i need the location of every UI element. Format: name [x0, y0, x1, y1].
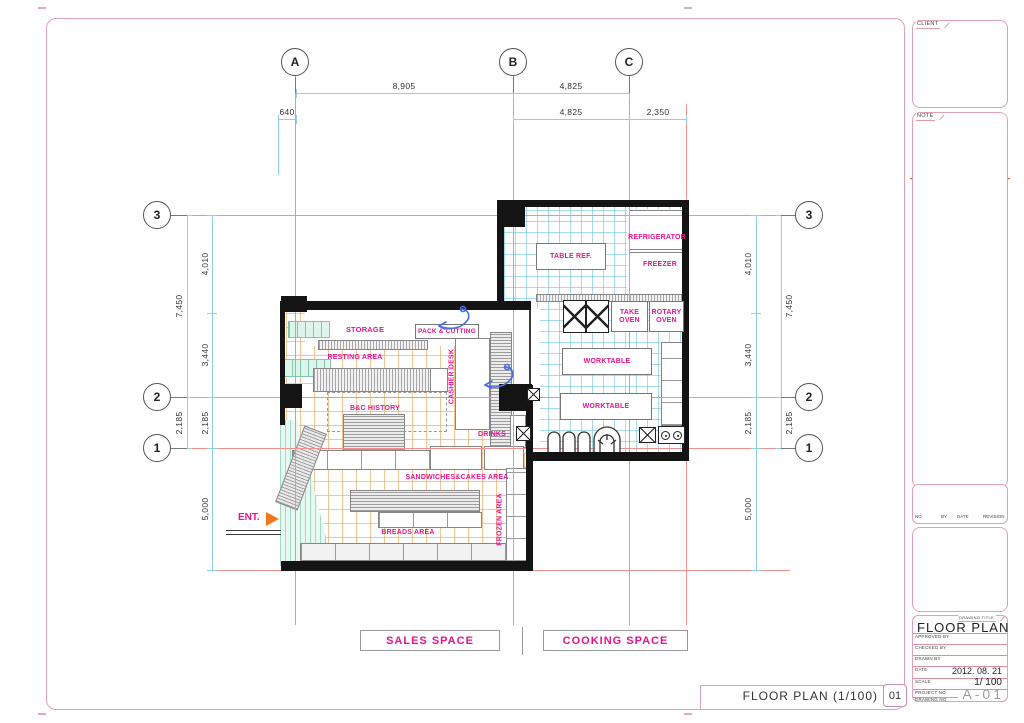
cashier-counter: [455, 338, 490, 430]
oven-unit: [563, 300, 586, 333]
column-label: B: [509, 55, 518, 69]
wall-cooking-top: [497, 200, 689, 207]
row-label: 1: [806, 441, 813, 455]
revision-header-revision: REVISION: [983, 514, 1005, 519]
dim-8905: 8,905: [364, 81, 444, 91]
date-value: 2012. 08. 21: [934, 666, 1002, 676]
drawing-no-value: A-01: [950, 686, 1004, 702]
rotary-oven-fixture: ROTARY OVEN: [649, 301, 684, 332]
display-counter: [313, 368, 448, 392]
pack-cutting-box: PACK & CUTTING: [415, 324, 479, 339]
registration-mark: [38, 7, 46, 9]
worktable-1-fixture: WORKTABLE: [562, 348, 652, 375]
gridline-2: [172, 397, 796, 398]
wall-sales-bottom: [281, 561, 532, 571]
row-label: 2: [154, 390, 161, 404]
column-label: C: [625, 55, 634, 69]
side-cabinet: [661, 342, 684, 426]
dim-4825: 4,825: [531, 81, 611, 91]
dim-7450-left: 7,450: [174, 286, 184, 326]
pack-cutting-label: PACK & CUTTING: [418, 328, 476, 335]
project-no-label: PROJECT NO: [915, 690, 946, 695]
table-ref-fixture: TABLE REF.: [536, 243, 606, 270]
drawing-sheet: A B C 3 2 1 3 2 1 8,905 4,825 640 4,825 …: [0, 0, 1024, 723]
counter-cap: [430, 368, 448, 392]
cashier-desk-label: CASHIER DESK: [449, 337, 456, 417]
sandwiches-label: SANDWICHES&CAKES AREA: [397, 474, 517, 481]
column-label: A: [291, 55, 300, 69]
wall-divider-upper: [529, 310, 531, 385]
dim-2185-right-inner: 2,185: [743, 403, 753, 443]
row-bubble-1-left: 1: [143, 434, 171, 462]
floor-drain: [516, 426, 531, 441]
bottom-shelf-row: [300, 543, 526, 561]
dimension-tick: [207, 570, 217, 571]
storage-shelf: [318, 340, 428, 350]
breads-island: [350, 490, 480, 512]
drawing-no-label: DRAWING NO: [915, 697, 947, 702]
take-oven-label: TAKE OVEN: [612, 309, 647, 325]
dimension-tick: [751, 397, 761, 398]
bubble-stem: [171, 397, 187, 398]
take-oven-fixture: TAKE OVEN: [611, 301, 648, 332]
checked-by-label: CHECKED BY: [915, 645, 946, 650]
column-bubble-B: B: [499, 48, 527, 76]
note-box: [912, 112, 1008, 488]
wall-sales-top: [281, 301, 531, 310]
row-bubble-3-right: 3: [795, 201, 823, 229]
refrigerator-unit: [629, 210, 683, 250]
dimension-line: [781, 215, 782, 448]
burner-icon: [661, 431, 670, 440]
neighbor-wall-line: [226, 534, 281, 535]
dimension-line: [187, 215, 188, 448]
column-block-left-2: [280, 384, 302, 408]
bubble-stem: [171, 448, 187, 449]
dimension-tick: [513, 115, 514, 124]
dim-640: 640: [267, 107, 307, 117]
dimension-tick: [751, 313, 761, 314]
gridline-B: [513, 76, 514, 625]
dimension-line: [513, 119, 687, 120]
row-bubble-2-left: 2: [143, 383, 171, 411]
dim-2350: 2,350: [628, 107, 688, 117]
gridline-3: [172, 215, 796, 216]
storage-label: STORAGE: [330, 325, 400, 334]
worktable-2-label: WORKTABLE: [583, 403, 630, 410]
gridline-A: [295, 76, 296, 625]
floor-drain: [527, 388, 540, 401]
breads-island-lower: [378, 512, 482, 528]
entrance-label: ENT.: [238, 512, 260, 523]
worktable-2-fixture: WORKTABLE: [560, 393, 652, 420]
dimension-line: [278, 119, 296, 120]
note-tab: NOTE: [916, 113, 935, 121]
registration-mark: [684, 7, 692, 9]
scale-label: SCALE: [915, 679, 931, 684]
breads-area-label: BREADS AREA: [368, 529, 448, 536]
dimension-line: [756, 215, 757, 570]
cooking-space-legend: COOKING SPACE: [543, 630, 688, 651]
table-ref-label: TABLE REF.: [550, 253, 592, 260]
dimension-tick: [207, 215, 217, 216]
approved-by-label: APPROVED BY: [915, 634, 949, 639]
dimension-tick: [207, 313, 217, 314]
sheet-number-box: 01: [883, 684, 907, 707]
wall-cooking-bottom: [527, 452, 689, 461]
revision-header-by: BY: [941, 514, 947, 519]
dim-3440-left: 3,440: [200, 335, 210, 375]
column-bubble-A: A: [281, 48, 309, 76]
footer-strip-line: [700, 685, 905, 686]
dim-2185-left-inner: 2,185: [200, 403, 210, 443]
cooking-space-label: COOKING SPACE: [563, 635, 669, 647]
stove-unit: [639, 427, 656, 443]
burner-icon: [673, 431, 682, 440]
legend-divider: [522, 627, 523, 655]
dimension-line: [212, 215, 213, 570]
dim-4010-left: 4,010: [200, 244, 210, 284]
dimension-line: [296, 93, 630, 94]
dimension-tick: [751, 448, 761, 449]
dim-4825b: 4,825: [531, 107, 611, 117]
bubble-stem: [629, 77, 630, 93]
rotary-oven-label: ROTARY OVEN: [650, 309, 683, 325]
drawn-by-label: DRAWN BY: [915, 656, 941, 661]
revision-header-date: DATE: [957, 514, 969, 519]
row-label: 2: [806, 390, 813, 404]
row-bubble-3-left: 3: [143, 201, 171, 229]
dim-4010-right: 4,010: [743, 244, 753, 284]
company-box: [912, 527, 1008, 612]
dimension-tick: [751, 215, 761, 216]
bubble-stem: [513, 77, 514, 93]
client-tab: CLIENT: [916, 21, 940, 29]
refrigerator-label: REFRIGERATOR: [617, 234, 697, 241]
gridline-1: [172, 448, 796, 449]
dimension-tick: [296, 89, 297, 98]
drawing-title: FLOOR PLAN: [917, 620, 1009, 635]
date-label: DATE: [915, 667, 927, 672]
history-label: B&C HISTORY: [335, 405, 415, 412]
row-label: 3: [154, 208, 161, 222]
bubble-stem: [171, 215, 187, 216]
column-bubble-C: C: [615, 48, 643, 76]
dim-2185-left-outer: 2,185: [174, 403, 184, 443]
freezer-unit: [629, 252, 683, 296]
column-block: [497, 200, 525, 227]
dim-2185-right-outer: 2,185: [784, 403, 794, 443]
display-case: [484, 446, 524, 470]
dim-7450-right: 7,450: [784, 286, 794, 326]
wall-divider: [526, 385, 533, 571]
sales-space-label: SALES SPACE: [386, 635, 474, 647]
worktable-1-label: WORKTABLE: [584, 358, 631, 365]
dim-3440-right: 3,440: [743, 335, 753, 375]
dimension-tick: [207, 397, 217, 398]
dim-5000-left: 5,000: [200, 489, 210, 529]
row-label: 1: [154, 441, 161, 455]
dim-5000-right: 5,000: [743, 489, 753, 529]
gas-burners: [658, 426, 685, 444]
frozen-cases: [506, 468, 528, 562]
neighbor-wall-line: [226, 530, 281, 531]
row-label: 3: [806, 208, 813, 222]
client-box: [912, 20, 1008, 108]
entrance-arrow-icon: [266, 512, 279, 526]
bubble-stem: [295, 77, 296, 93]
display-case: [430, 446, 482, 470]
registration-mark: [38, 713, 46, 715]
row-bubble-1-right: 1: [795, 434, 823, 462]
drinks-label: DRINKS: [467, 431, 517, 438]
registration-mark: [684, 713, 692, 715]
oven-unit: [586, 300, 609, 333]
row-bubble-2-right: 2: [795, 383, 823, 411]
dimension-tick: [207, 448, 217, 449]
resting-area-label: RESTING AREA: [315, 354, 395, 361]
revision-header-no: NO: [915, 514, 922, 519]
freezer-label: FREEZER: [630, 261, 690, 268]
dimension-extension: [278, 119, 279, 175]
frozen-area-label: FROZEN AREA: [497, 485, 504, 555]
dimension-tick: [751, 570, 761, 571]
footer-drawing-title: FLOOR PLAN (1/100): [695, 689, 878, 703]
sales-space-legend: SALES SPACE: [360, 630, 500, 651]
